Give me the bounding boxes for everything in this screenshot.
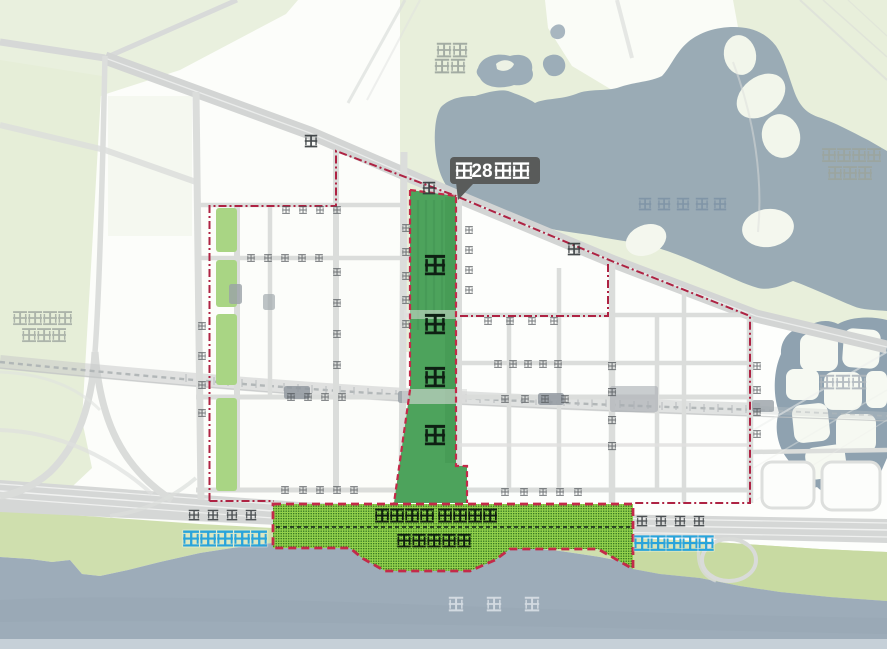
svg-text:28: 28: [471, 161, 492, 182]
